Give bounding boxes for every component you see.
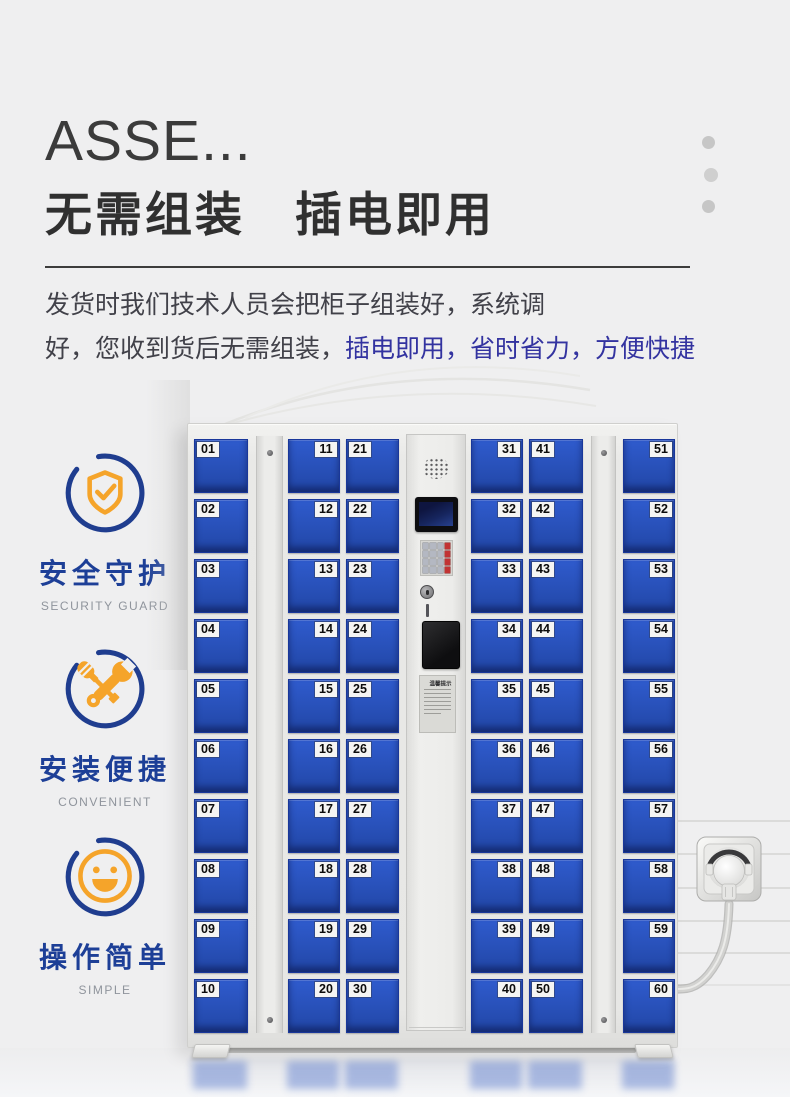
door-number-label: 43 (532, 562, 554, 577)
locker-door-22: 22 (346, 499, 399, 553)
screen-glass (419, 502, 453, 526)
locker-door-18: 18 (288, 859, 340, 913)
decor-dot (702, 200, 715, 213)
locker-door-17: 17 (288, 799, 340, 853)
door-number-label: 46 (532, 742, 554, 757)
door-number-label: 38 (498, 862, 520, 877)
screw-icon (267, 1017, 273, 1023)
locker-door-01: 01 (194, 439, 248, 493)
door-number-label: 33 (498, 562, 520, 577)
door-number-label: 26 (349, 742, 371, 757)
locker-door-41: 41 (529, 439, 583, 493)
locker-door-12: 12 (288, 499, 340, 553)
door-reflection (622, 1061, 674, 1089)
door-number-label: 55 (650, 682, 672, 697)
locker-door-23: 23 (346, 559, 399, 613)
door-number-label: 30 (349, 982, 371, 997)
door-reflection (528, 1061, 582, 1089)
door-number-label: 12 (315, 502, 337, 517)
cabinet-foot (191, 1044, 230, 1058)
locker-door-37: 37 (471, 799, 523, 853)
locker-door-21: 21 (346, 439, 399, 493)
keypad-key-red (445, 551, 450, 557)
keypad-key (430, 559, 435, 565)
locker-door-15: 15 (288, 679, 340, 733)
door-number-label: 16 (315, 742, 337, 757)
door-number-label: 06 (197, 742, 219, 757)
locker-door-29: 29 (346, 919, 399, 973)
door-number-label: 54 (650, 622, 672, 637)
locker-door-56: 56 (623, 739, 675, 793)
door-number-label: 23 (349, 562, 371, 577)
locker-column-6: 51525354555657585960 (623, 439, 675, 1039)
locker-door-33: 33 (471, 559, 523, 613)
locker-column-2: 11121314151617181920 (288, 439, 340, 1039)
keypad-key-red (445, 559, 450, 565)
door-number-label: 35 (498, 682, 520, 697)
locker-door-27: 27 (346, 799, 399, 853)
door-number-label: 01 (197, 442, 219, 457)
door-number-label: 04 (197, 622, 219, 637)
locker-column-5: 41424344454647484950 (529, 439, 583, 1039)
door-number-label: 13 (315, 562, 337, 577)
door-number-label: 24 (349, 622, 371, 637)
locker-door-60: 60 (623, 979, 675, 1033)
door-number-label: 42 (532, 502, 554, 517)
door-number-label: 60 (650, 982, 672, 997)
locker-door-10: 10 (194, 979, 248, 1033)
door-number-label: 47 (532, 802, 554, 817)
smart-locker-cabinet: 0102030405060708091011121314151617181920… (187, 423, 678, 1048)
door-number-label: 41 (532, 442, 554, 457)
locker-door-57: 57 (623, 799, 675, 853)
door-number-label: 29 (349, 922, 371, 937)
page-title-zh: 无需组装 插电即用 (45, 176, 495, 245)
decor-dot (704, 168, 718, 182)
title-divider (45, 266, 690, 268)
locker-door-24: 24 (346, 619, 399, 673)
shield-check-icon (62, 450, 148, 536)
keypad-key (430, 551, 435, 557)
door-number-label: 34 (498, 622, 520, 637)
keypad-key (438, 543, 443, 549)
notice-label: 温馨提示 (419, 675, 456, 733)
screw-icon (601, 450, 607, 456)
screw-icon (267, 450, 273, 456)
locker-door-52: 52 (623, 499, 675, 553)
door-number-label: 39 (498, 922, 520, 937)
keypad-key-red (445, 567, 450, 573)
keypad-key (438, 567, 443, 573)
door-number-label: 22 (349, 502, 371, 517)
door-number-label: 07 (197, 802, 219, 817)
cabinet-base-rail (212, 1048, 636, 1053)
vent-strip (591, 436, 616, 1033)
locker-door-50: 50 (529, 979, 583, 1033)
locker-door-35: 35 (471, 679, 523, 733)
locker-door-31: 31 (471, 439, 523, 493)
locker-door-32: 32 (471, 499, 523, 553)
keypad-key (423, 567, 428, 573)
vent-strip (256, 436, 283, 1033)
screw-icon (601, 1017, 607, 1023)
door-number-label: 03 (197, 562, 219, 577)
locker-door-38: 38 (471, 859, 523, 913)
door-reflection (345, 1061, 398, 1089)
locker-column-1: 01020304050607080910 (194, 439, 248, 1039)
wall-shadow (146, 380, 190, 670)
tools-icon (62, 646, 148, 732)
locker-door-16: 16 (288, 739, 340, 793)
door-number-label: 32 (498, 502, 520, 517)
keypad-key-red (445, 543, 450, 549)
door-number-label: 08 (197, 862, 219, 877)
wall-socket-plug-icon (660, 828, 790, 1018)
locker-door-02: 02 (194, 499, 248, 553)
lock-slot (426, 604, 429, 617)
door-number-label: 20 (315, 982, 337, 997)
cabinet-foot (634, 1044, 673, 1058)
door-number-label: 10 (197, 982, 219, 997)
door-reflection (470, 1061, 522, 1089)
feature-subtitle: CONVENIENT (20, 795, 190, 809)
feature-convenient: 安装便捷 CONVENIENT (20, 646, 190, 809)
locker-door-54: 54 (623, 619, 675, 673)
smiley-icon (62, 834, 148, 920)
door-number-label: 18 (315, 862, 337, 877)
locker-door-19: 19 (288, 919, 340, 973)
locker-door-07: 07 (194, 799, 248, 853)
notice-title: 温馨提示 (430, 679, 446, 683)
keypad-key (430, 543, 435, 549)
locker-door-25: 25 (346, 679, 399, 733)
locker-door-14: 14 (288, 619, 340, 673)
feature-title: 操作简单 (20, 936, 190, 976)
locker-door-03: 03 (194, 559, 248, 613)
speaker-icon (423, 457, 449, 479)
keypad-key (423, 551, 428, 557)
door-number-label: 31 (498, 442, 520, 457)
locker-door-20: 20 (288, 979, 340, 1033)
door-number-label: 45 (532, 682, 554, 697)
door-number-label: 15 (315, 682, 337, 697)
feature-title: 安装便捷 (20, 748, 190, 788)
locker-door-36: 36 (471, 739, 523, 793)
door-number-label: 11 (315, 442, 337, 457)
panel-seam (409, 1027, 463, 1028)
locker-door-26: 26 (346, 739, 399, 793)
locker-door-49: 49 (529, 919, 583, 973)
locker-door-08: 08 (194, 859, 248, 913)
door-number-label: 49 (532, 922, 554, 937)
locker-door-48: 48 (529, 859, 583, 913)
display-screen (415, 497, 458, 532)
locker-door-05: 05 (194, 679, 248, 733)
locker-door-58: 58 (623, 859, 675, 913)
door-number-label: 50 (532, 982, 554, 997)
keypad-key (423, 559, 428, 565)
locker-door-44: 44 (529, 619, 583, 673)
door-number-label: 58 (650, 862, 672, 877)
locker-door-34: 34 (471, 619, 523, 673)
locker-door-55: 55 (623, 679, 675, 733)
door-number-label: 53 (650, 562, 672, 577)
door-number-label: 52 (650, 502, 672, 517)
locker-door-59: 59 (623, 919, 675, 973)
locker-door-53: 53 (623, 559, 675, 613)
page-title-en: ASSE... (45, 108, 252, 174)
door-number-label: 44 (532, 622, 554, 637)
keypad (420, 540, 453, 576)
door-number-label: 21 (349, 442, 371, 457)
door-number-label: 28 (349, 862, 371, 877)
door-reflection (287, 1061, 339, 1089)
door-reflection (193, 1061, 247, 1089)
keypad-key (423, 543, 428, 549)
locker-door-46: 46 (529, 739, 583, 793)
locker-door-06: 06 (194, 739, 248, 793)
description-line: 发货时我们技术人员会把柜子组装好，系统调 (45, 284, 725, 328)
locker-door-30: 30 (346, 979, 399, 1033)
door-number-label: 19 (315, 922, 337, 937)
locker-door-39: 39 (471, 919, 523, 973)
locker-door-43: 43 (529, 559, 583, 613)
door-number-label: 51 (650, 442, 672, 457)
feature-simple: 操作简单 SIMPLE (20, 834, 190, 997)
locker-door-11: 11 (288, 439, 340, 493)
locker-door-04: 04 (194, 619, 248, 673)
door-number-label: 09 (197, 922, 219, 937)
locker-column-4: 31323334353637383940 (471, 439, 523, 1039)
door-number-label: 05 (197, 682, 219, 697)
control-panel: 温馨提示 (406, 434, 466, 1031)
door-number-label: 59 (650, 922, 672, 937)
wall-panel-line (672, 820, 790, 822)
door-number-label: 57 (650, 802, 672, 817)
locker-door-42: 42 (529, 499, 583, 553)
keypad-key (430, 567, 435, 573)
door-number-label: 36 (498, 742, 520, 757)
locker-door-51: 51 (623, 439, 675, 493)
decor-dot (702, 136, 715, 149)
door-number-label: 17 (315, 802, 337, 817)
door-number-label: 48 (532, 862, 554, 877)
door-number-label: 27 (349, 802, 371, 817)
locker-door-45: 45 (529, 679, 583, 733)
keypad-key (438, 559, 443, 565)
locker-door-47: 47 (529, 799, 583, 853)
keypad-key (438, 551, 443, 557)
door-number-label: 37 (498, 802, 520, 817)
door-number-label: 25 (349, 682, 371, 697)
locker-door-40: 40 (471, 979, 523, 1033)
door-number-label: 14 (315, 622, 337, 637)
locker-door-28: 28 (346, 859, 399, 913)
door-number-label: 02 (197, 502, 219, 517)
feature-subtitle: SIMPLE (20, 983, 190, 997)
door-number-label: 40 (498, 982, 520, 997)
wall-swirl-decor (190, 338, 610, 433)
locker-door-13: 13 (288, 559, 340, 613)
door-number-label: 56 (650, 742, 672, 757)
card-reader (422, 621, 460, 669)
locker-door-09: 09 (194, 919, 248, 973)
cabinet-reflection (187, 1058, 676, 1092)
locker-column-3: 21222324252627282930 (346, 439, 399, 1039)
key-lock-icon (420, 585, 434, 599)
